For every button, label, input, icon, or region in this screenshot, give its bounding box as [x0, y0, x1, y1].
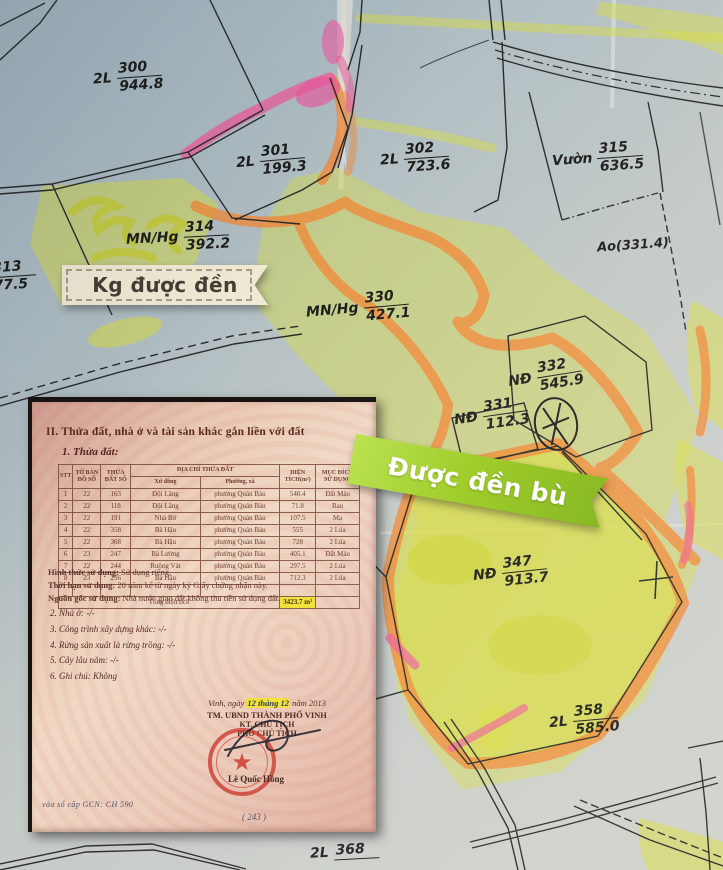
date-highlight: 12 tháng 12 [246, 698, 290, 708]
place-date-line: Vinh, ngày 12 tháng 12 năm 2013 [172, 698, 362, 708]
parcel-prefix: MN/Hg [126, 229, 179, 248]
cert-item: 6. Ghi chú: Không [50, 671, 175, 682]
parcel-label-314: MN/Hg 314392.2 [125, 218, 232, 256]
parcel-label-301: 2L 301199.3 [235, 141, 310, 180]
table-row: 322191Nhà Bờphường Quán Bàu107.5Mạ [59, 513, 360, 525]
parcel-prefix: NĐ [453, 409, 479, 428]
parcel-label-313: 31377.5 [0, 258, 37, 294]
table-row: 122163Đội Lăngphường Quán Bàu540.4Đất Mà… [59, 489, 360, 501]
table-row: 623247Bà Lườngphường Quán Bàu405.1Đất Mà… [59, 549, 360, 561]
parcel-prefix: 2L [93, 70, 113, 87]
parcel-label-358: 2L 358585.0 [548, 701, 623, 740]
usage-notes: Hình thức sử dụng: Sử dụng riêng. Thời h… [48, 566, 280, 606]
badge-not-compensated: Kg được đền [62, 265, 268, 305]
usage-note: Thời hạn sử dụng: 20 năm kể từ ngày ký G… [48, 579, 280, 592]
col-area: DIỆN TÍCH(m²) [280, 465, 316, 489]
parcel-prefix: 2L [310, 845, 329, 862]
table-row: 422358Bà Hậuphường Quán Bàu5552 Lúa [59, 525, 360, 537]
parcel-prefix: 2L [380, 151, 400, 168]
parcel-prefix: 2L [548, 714, 568, 732]
cert-item: 3. Công trình xây dựng khác: -/- [50, 624, 175, 635]
parcel-prefix: NĐ [472, 566, 497, 584]
table-row: 222118Đội Lăngphường Quán Bàu71.8Rau [59, 501, 360, 513]
parcel-label-368: 2L 368 [310, 841, 380, 862]
col-hamlet: Xứ đồng [131, 477, 201, 489]
parcel-label-315: Vườn 315636.5 [551, 139, 647, 178]
parcel-number: 313 [0, 258, 36, 278]
badge-label: Kg được đền [92, 273, 238, 297]
parcel-area: 392.2 [184, 235, 233, 253]
cert-item: 2. Nhà ở: -/- [50, 608, 175, 619]
parcel-area: 636.5 [597, 155, 646, 174]
parcel-number: 368 [333, 841, 379, 860]
col-map-sheet: TỜ BẢN ĐỒ SỐ [73, 465, 101, 489]
parcel-prefix: NĐ [507, 371, 533, 390]
parcel-prefix: Vườn [552, 151, 593, 170]
total-value: 3423.7 m² [280, 597, 316, 609]
col-parcel-no: THỬA ĐẤT SỐ [101, 465, 131, 489]
table-header-row: STT TỜ BẢN ĐỒ SỐ THỬA ĐẤT SỐ ĐỊA CHỈ THỬ… [59, 465, 360, 477]
parcel-prefix: MN/Hg [306, 300, 360, 321]
cert-items: 2. Nhà ở: -/- 3. Công trình xây dựng khá… [50, 608, 175, 687]
col-ward: Phường, xã [200, 477, 280, 489]
land-certificate-document: II. Thửa đất, nhà ở và tài sản khác gắn … [28, 397, 376, 832]
parcel-area: 77.5 [0, 275, 31, 293]
signer-name: Lê Quốc Hồng [228, 774, 284, 784]
parcel-label-302: 2L 302723.6 [379, 140, 453, 177]
cert-section-title: II. Thửa đất, nhà ở và tài sản khác gắn … [46, 426, 366, 438]
signature-icon [220, 712, 330, 767]
cert-item: 4. Rừng sản xuất là rừng trồng: -/- [50, 640, 175, 651]
parcel-area: 944.8 [117, 75, 166, 94]
parcel-prefix: 2L [235, 154, 255, 172]
table-row: 522368Bà Hậuphường Quán Bàu7282 Lúa [59, 537, 360, 549]
cert-item: 5. Cây lâu năm: -/- [50, 655, 175, 666]
handwritten-note-2: ( 243 ) [242, 812, 266, 822]
col-stt: STT [59, 465, 73, 489]
cadastral-map-photo: 2L 300944.8 2L 301199.3 2L 302723.6 Vườn… [0, 0, 723, 870]
parcel-area: 723.6 [404, 156, 453, 175]
col-address: ĐỊA CHỈ THỬA ĐẤT [131, 465, 280, 477]
handwritten-note: vào sổ cấp GCN: CH 590 [42, 800, 133, 809]
cert-subsection-title: 1. Thửa đất: [62, 446, 118, 458]
parcel-area [334, 860, 338, 861]
usage-note: Hình thức sử dụng: Sử dụng riêng. [48, 566, 280, 579]
parcel-label-300: 2L 300944.8 [92, 59, 166, 96]
usage-note: Nguồn gốc sử dụng: Nhà nước giao đất khô… [48, 592, 280, 605]
